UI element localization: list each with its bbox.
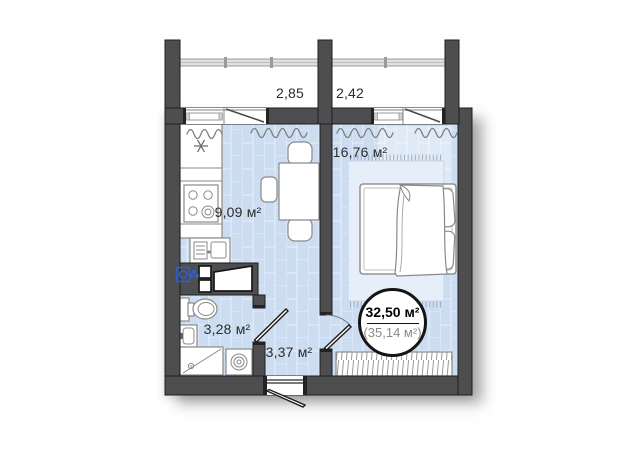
blanket [395,185,447,276]
shower-icon [180,347,223,375]
wall-kitchen-living-bottom [320,349,332,376]
kitchen-window [183,108,269,124]
kitchen-area-label: 9,09 м² [215,204,262,220]
stove-icon [184,185,218,222]
balcony-railing [180,57,445,68]
total-area-main: 32,50 м² [366,305,420,320]
chair-bottom [288,218,312,241]
pillar-middle [318,40,332,124]
entrance-door [263,376,307,407]
bed [360,184,456,276]
wall-bathroom-right-bottom [253,342,265,376]
washing-machine-icon [226,349,252,375]
balcony-2-area-label: 2,42 [336,85,364,101]
dining-table [279,163,319,220]
bathroom-area-label: 3,28 м² [204,321,251,337]
kitchen-sink-icon [190,238,230,263]
badge-divider [367,323,419,324]
balcony-1-area-label: 2,85 [276,85,304,101]
pillar-right [445,40,459,124]
floor-plan-drawing [0,0,644,470]
toilet-icon [180,298,217,321]
wall-bottom [165,376,472,395]
chair-top [288,142,312,165]
living-area-label: 16,76 м² [333,144,388,160]
total-area-secondary: (35,14 м²) [363,326,421,340]
washbasin-icon [179,325,197,347]
chair-left [261,177,277,202]
wall-left [165,40,180,395]
hallway-area-label: 3,37 м² [266,344,313,360]
wall-kitchen-living-top [320,124,332,315]
living-window [371,108,445,124]
total-area-badge: 32,50 м² (35,14 м²) [358,288,427,357]
wall-right [458,108,472,395]
floor-plan-canvas: 2,85 2,42 9,09 м² 16,76 м² 3,28 м² 3,37 … [0,0,644,470]
